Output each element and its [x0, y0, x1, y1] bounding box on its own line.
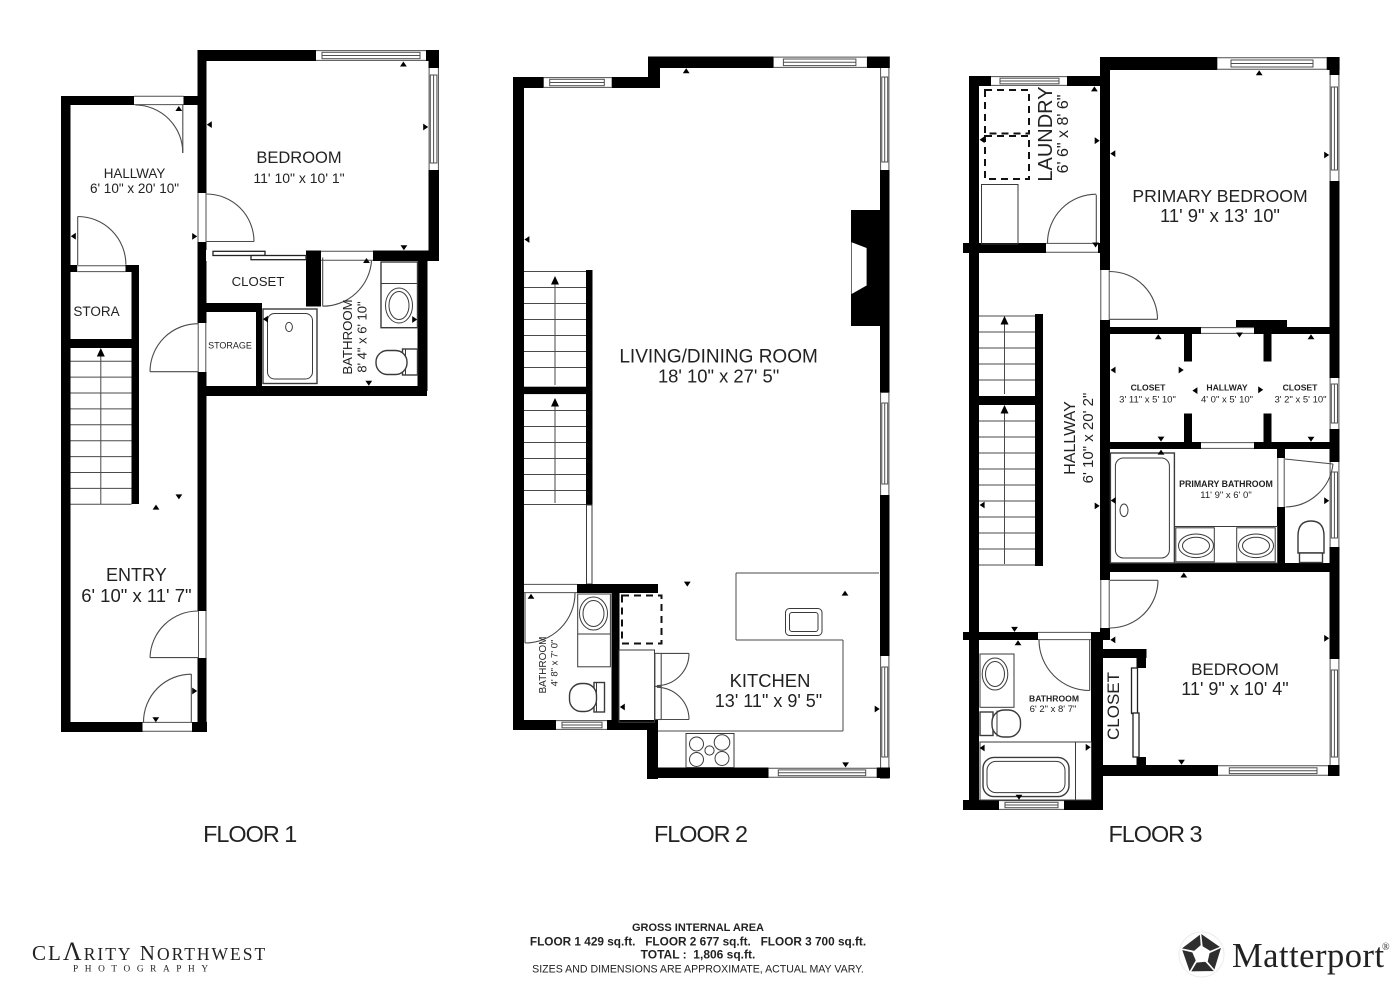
svg-text:BATHROOM: BATHROOM	[538, 636, 549, 693]
svg-text:SIZES AND DIMENSIONS ARE APPRO: SIZES AND DIMENSIONS ARE APPROXIMATE, AC…	[532, 964, 864, 976]
svg-text:LAUNDRY: LAUNDRY	[1035, 86, 1057, 181]
svg-text:18' 10" x 27' 5": 18' 10" x 27' 5"	[658, 366, 779, 387]
svg-text:®: ®	[1382, 942, 1390, 953]
svg-text:6' 10" x 20' 10": 6' 10" x 20' 10"	[90, 181, 179, 196]
svg-text:CLOSET: CLOSET	[1131, 383, 1167, 393]
svg-text:3' 11" x 5' 10": 3' 11" x 5' 10"	[1119, 395, 1176, 406]
svg-text:8' 4" x 6' 10": 8' 4" x 6' 10"	[355, 301, 370, 373]
svg-text:KITCHEN: KITCHEN	[730, 670, 811, 691]
svg-text:PRIMARY BEDROOM: PRIMARY BEDROOM	[1132, 186, 1307, 206]
svg-text:Matterport: Matterport	[1232, 937, 1385, 975]
svg-text:FLOOR 1: FLOOR 1	[203, 821, 296, 847]
svg-text:FLOOR 2: FLOOR 2	[654, 821, 747, 847]
svg-text:11' 10" x 10' 1": 11' 10" x 10' 1"	[253, 170, 344, 186]
svg-text:CLOSET: CLOSET	[1283, 383, 1319, 393]
svg-text:STORA: STORA	[73, 304, 119, 319]
svg-text:6' 6" x 8' 6": 6' 6" x 8' 6"	[1055, 95, 1072, 174]
svg-text:11' 9" x 13' 10": 11' 9" x 13' 10"	[1160, 205, 1280, 226]
svg-text:11' 9" x 6' 0": 11' 9" x 6' 0"	[1200, 490, 1251, 501]
svg-text:HALLWAY: HALLWAY	[1206, 383, 1247, 393]
svg-text:ENTRY: ENTRY	[106, 565, 167, 585]
svg-text:HALLWAY: HALLWAY	[1062, 401, 1079, 475]
svg-text:CLOSET: CLOSET	[1104, 672, 1123, 740]
svg-text:PHOTOGRAPHY: PHOTOGRAPHY	[73, 965, 215, 975]
svg-text:4' 8" x 7' 0": 4' 8" x 7' 0"	[550, 640, 561, 687]
svg-text:4' 0" x 5' 10": 4' 0" x 5' 10"	[1201, 395, 1253, 406]
svg-text:GROSS INTERNAL AREA: GROSS INTERNAL AREA	[632, 922, 764, 934]
svg-text:PRIMARY BATHROOM: PRIMARY BATHROOM	[1179, 479, 1273, 489]
svg-text:FLOOR 3: FLOOR 3	[1108, 821, 1201, 847]
svg-text:6' 2" x 8' 7": 6' 2" x 8' 7"	[1030, 704, 1077, 715]
svg-text:CLOSET: CLOSET	[232, 274, 285, 289]
svg-text:BATHROOM: BATHROOM	[1029, 694, 1079, 704]
svg-text:6' 10" x 11' 7": 6' 10" x 11' 7"	[81, 585, 191, 606]
svg-text:BEDROOM: BEDROOM	[256, 149, 341, 167]
svg-text:11' 9" x 10' 4": 11' 9" x 10' 4"	[1181, 679, 1288, 699]
svg-text:6' 10" x 20' 2": 6' 10" x 20' 2"	[1080, 393, 1097, 484]
svg-text:BEDROOM: BEDROOM	[1191, 660, 1279, 679]
svg-text:13' 11" x 9' 5": 13' 11" x 9' 5"	[715, 691, 822, 711]
svg-text:BATHROOM: BATHROOM	[340, 299, 355, 374]
svg-text:FLOOR 1 429 sq.ft. FLOOR 2 6: FLOOR 1 429 sq.ft. FLOOR 2 677 sq.ft. FL…	[530, 935, 866, 949]
svg-text:LIVING/DINING ROOM: LIVING/DINING ROOM	[619, 347, 817, 368]
svg-text:HALLWAY: HALLWAY	[104, 166, 166, 181]
svg-text:STORAGE: STORAGE	[208, 341, 252, 351]
svg-text:TOTAL : 1,806 sq.ft.: TOTAL : 1,806 sq.ft.	[641, 948, 756, 962]
svg-text:3' 2" x 5' 10": 3' 2" x 5' 10"	[1274, 395, 1326, 406]
